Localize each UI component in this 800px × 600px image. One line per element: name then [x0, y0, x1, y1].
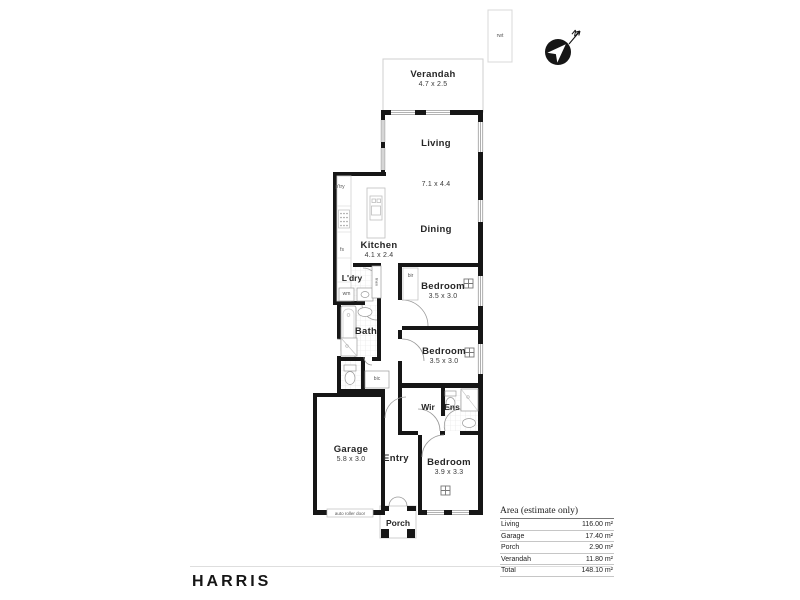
- area-row-living: Living 116.00 m²: [500, 519, 614, 531]
- room-dims-bedroom2: 3.5 x 3.0: [430, 358, 459, 365]
- footer-divider: [190, 566, 612, 567]
- room-dims-bedroom1: 3.5 x 3.0: [429, 293, 458, 300]
- room-label-verandah: Verandah: [410, 69, 455, 80]
- room-dims-garage: 5.8 x 3.0: [337, 456, 366, 463]
- area-row-porch: Porch 2.90 m²: [500, 542, 614, 554]
- room-label-dining: Dining: [420, 224, 451, 235]
- area-table-title: Area (estimate only): [500, 506, 614, 519]
- area-row-value: 116.00 m²: [582, 521, 613, 528]
- area-row-value: 11.80 m²: [586, 556, 613, 563]
- room-label-bedroom2: Bedroom: [422, 346, 466, 357]
- room-label-bath: Bath: [355, 326, 377, 337]
- room-label-porch: Porch: [386, 518, 410, 528]
- room-label-kitchen: Kitchen: [361, 240, 398, 251]
- built-in-robe-label: bir: [408, 273, 414, 279]
- room-dims-bedroom3: 3.9 x 3.3: [435, 469, 464, 476]
- area-row-label: Living: [501, 521, 519, 528]
- room-label-entry: Entry: [383, 453, 409, 464]
- room-dims-verandah: 4.7 x 2.5: [419, 81, 448, 88]
- room-label-bedroom1: Bedroom: [421, 281, 465, 292]
- room-label-wir: Wir: [421, 402, 435, 412]
- area-row-label: Porch: [501, 544, 519, 551]
- room-label-living: Living: [421, 138, 451, 149]
- area-row-label: Verandah: [501, 556, 531, 563]
- cupboard-label: bic: [374, 376, 380, 382]
- area-row-value: 17.40 m²: [585, 533, 613, 540]
- washing-machine-label: wm: [343, 291, 351, 297]
- pantry-label: p'try: [335, 184, 344, 190]
- ensuite-shower: [461, 389, 478, 411]
- floor-plan-drawing: [0, 0, 800, 600]
- ensuite-basin: [463, 419, 476, 428]
- room-label-laundry: L'dry: [342, 273, 362, 283]
- brand-logo: HARRIS: [192, 573, 271, 591]
- area-row-verandah: Verandah 11.80 m²: [500, 554, 614, 566]
- floor-plan-page: Verandah 4.7 x 2.5 Living 7.1 x 4.4 Dini…: [0, 0, 800, 600]
- area-row-value: 2.90 m²: [589, 544, 613, 551]
- area-row-garage: Garage 17.40 m²: [500, 531, 614, 543]
- room-dims-living: 7.1 x 4.4: [422, 181, 451, 188]
- area-row-label: Total: [501, 567, 516, 574]
- room-dims-kitchen: 4.1 x 2.4: [365, 252, 394, 259]
- bath-shower: [341, 338, 357, 356]
- linen-label: linen: [374, 278, 379, 286]
- kitchen-sink: [339, 210, 350, 228]
- area-row-value: 148.10 m²: [581, 567, 613, 574]
- room-label-bedroom3: Bedroom: [427, 457, 471, 468]
- room-label-garage: Garage: [334, 444, 369, 455]
- wc-toilet: [344, 365, 356, 385]
- room-label-ens: Ens: [444, 402, 460, 412]
- cooktop-oven-symbol: [370, 196, 382, 220]
- roller-door-label: auto roller door: [335, 511, 365, 516]
- fridge-space-label: fs: [340, 247, 344, 253]
- bath-basin: [358, 308, 372, 317]
- area-row-label: Garage: [501, 533, 524, 540]
- rainwater-tank-label: rwt: [497, 33, 504, 39]
- laundry-trough: [357, 288, 373, 301]
